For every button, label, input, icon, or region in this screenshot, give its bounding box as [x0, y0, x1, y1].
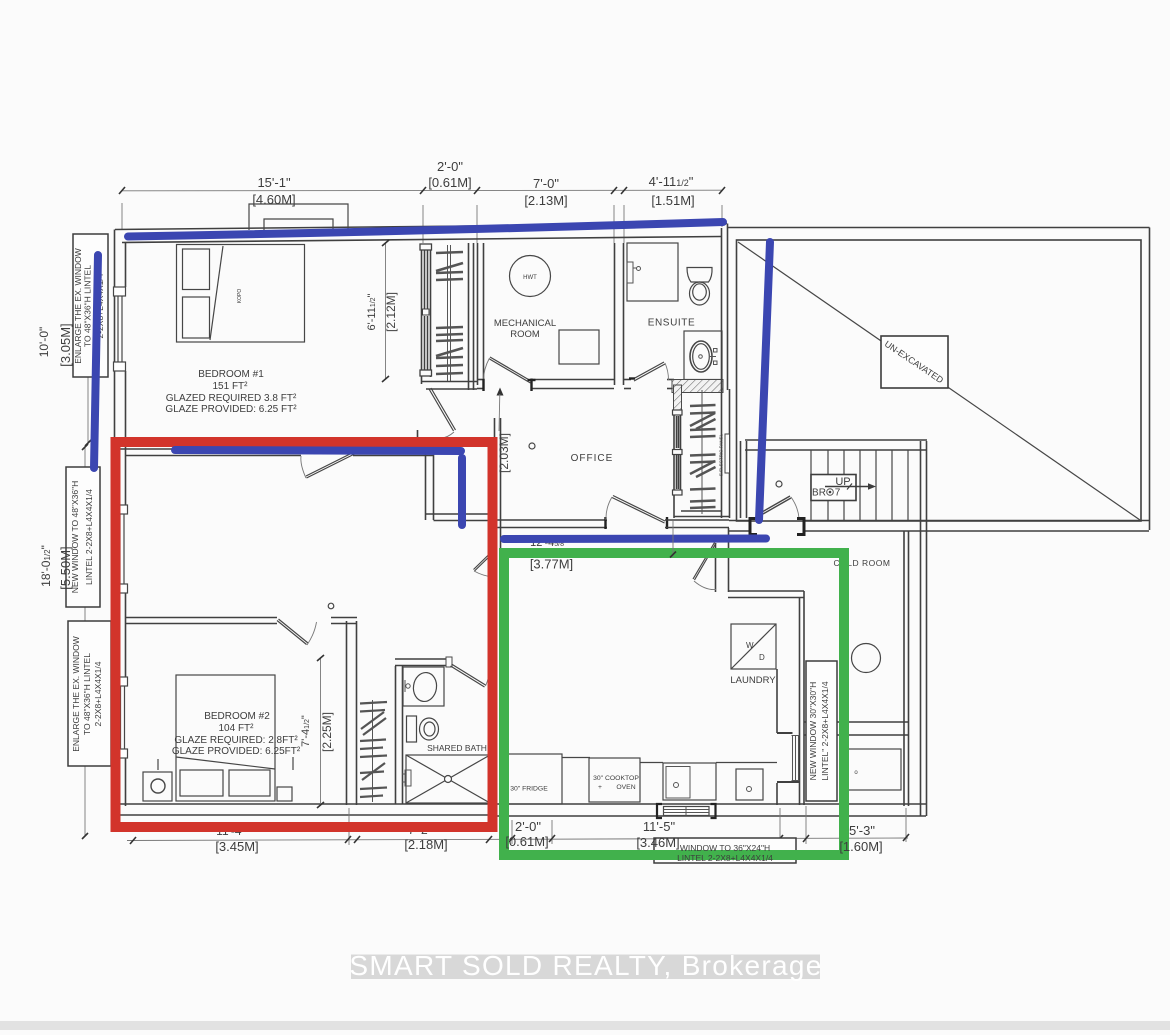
svg-text:10'-0": 10'-0" [37, 327, 51, 358]
svg-text:BEDROOM #2: BEDROOM #2 [204, 711, 270, 722]
svg-text:HWT: HWT [523, 275, 537, 281]
svg-text:30" COOKTOP: 30" COOKTOP [593, 775, 639, 782]
svg-text:TO 48"X36"H LINTEL: TO 48"X36"H LINTEL [83, 265, 93, 347]
svg-text:104 FT²: 104 FT² [218, 723, 254, 734]
svg-text:TO 48"X36"H LINTEL: TO 48"X36"H LINTEL [82, 653, 92, 735]
svg-text:LAUNDRY: LAUNDRY [730, 675, 776, 686]
svg-text:MECHANICAL: MECHANICAL [494, 318, 556, 329]
svg-text:[0.61M]: [0.61M] [505, 834, 548, 849]
svg-text:ENLARGE THE EX. WINDOW: ENLARGE THE EX. WINDOW [73, 248, 83, 364]
svg-text:[3.77M]: [3.77M] [530, 557, 573, 572]
svg-text:15'-1": 15'-1" [257, 175, 291, 190]
svg-text:ENSUITE: ENSUITE [648, 318, 696, 329]
svg-text:ENLARGE THE EX. WINDOW: ENLARGE THE EX. WINDOW [71, 636, 81, 752]
svg-text:W: W [746, 641, 754, 650]
svg-text:[2.12M]: [2.12M] [384, 292, 398, 332]
svg-text:LINTEL 2-2X8+L4X4X1/4: LINTEL 2-2X8+L4X4X1/4 [677, 853, 773, 863]
svg-text:[2.03M]: [2.03M] [497, 433, 511, 473]
svg-text:[2.13M]: [2.13M] [524, 193, 567, 208]
svg-text:+: + [598, 784, 602, 791]
svg-text:[2.25M]: [2.25M] [320, 712, 334, 752]
svg-text:2'-0": 2'-0" [437, 159, 463, 174]
svg-text:2'-0": 2'-0" [515, 819, 541, 834]
svg-text:2-2X8+L4X4X1/4: 2-2X8+L4X4X1/4 [93, 661, 103, 726]
svg-text:[5.50M]: [5.50M] [58, 546, 73, 589]
svg-text:OVEN: OVEN [616, 784, 635, 791]
svg-text:[1.60M]: [1.60M] [839, 839, 882, 854]
svg-text:[3.45M]: [3.45M] [215, 839, 258, 854]
svg-text:GLAZE REQUIRED: 2.8FT²: GLAZE REQUIRED: 2.8FT² [174, 735, 298, 746]
svg-text:[1.51M]: [1.51M] [651, 193, 694, 208]
svg-text:[0.61M]: [0.61M] [428, 175, 471, 190]
svg-text:ROOM: ROOM [510, 329, 540, 340]
svg-text:LINTEL" 2-2X8+L4X4X1/4: LINTEL" 2-2X8+L4X4X1/4 [820, 681, 830, 780]
svg-text:7: 7 [835, 488, 841, 499]
svg-text:[2.18M]: [2.18M] [404, 837, 447, 852]
svg-text:11'-5": 11'-5" [643, 819, 676, 834]
svg-text:30" FRIDGE: 30" FRIDGE [510, 786, 548, 793]
svg-text:5'-3": 5'-3" [849, 823, 875, 838]
svg-text:7'-41/2": 7'-41/2" [300, 715, 312, 747]
svg-text:151 FT²: 151 FT² [212, 381, 248, 392]
svg-text:NEW WINDOW 30"X30"H: NEW WINDOW 30"X30"H [808, 682, 818, 781]
svg-text:[3.46M]: [3.46M] [636, 835, 679, 850]
svg-text:GLAZE PROVIDED: 6.25 FT²: GLAZE PROVIDED: 6.25 FT² [165, 404, 297, 415]
svg-text:BEDROOM #1: BEDROOM #1 [198, 369, 264, 380]
svg-text:BR: BR [812, 488, 826, 499]
svg-text:[3.05M]: [3.05M] [58, 323, 73, 366]
svg-text:WINDOW TO 36"X24"H: WINDOW TO 36"X24"H [680, 843, 770, 853]
svg-text:E.ELECTRIC PANEL: E.ELECTRIC PANEL [719, 433, 724, 476]
svg-text:7'-0": 7'-0" [533, 176, 559, 191]
svg-text:GLAZE PROVIDED: 6.25FT²: GLAZE PROVIDED: 6.25FT² [172, 746, 301, 757]
svg-text:KOPO: KOPO [237, 289, 243, 304]
svg-text:LINTEL 2-2X8+L4X4X1/4: LINTEL 2-2X8+L4X4X1/4 [84, 489, 94, 585]
svg-text:SHARED BATH: SHARED BATH [427, 743, 487, 753]
svg-text:OFFICE: OFFICE [571, 453, 614, 464]
svg-text:SMART SOLD REALTY, Brokerage: SMART SOLD REALTY, Brokerage [349, 950, 822, 981]
svg-text:[4.60M]: [4.60M] [252, 192, 295, 207]
svg-text:D: D [759, 653, 765, 662]
svg-text:GLAZED REQUIRED 3.8 FT²: GLAZED REQUIRED 3.8 FT² [166, 393, 297, 404]
